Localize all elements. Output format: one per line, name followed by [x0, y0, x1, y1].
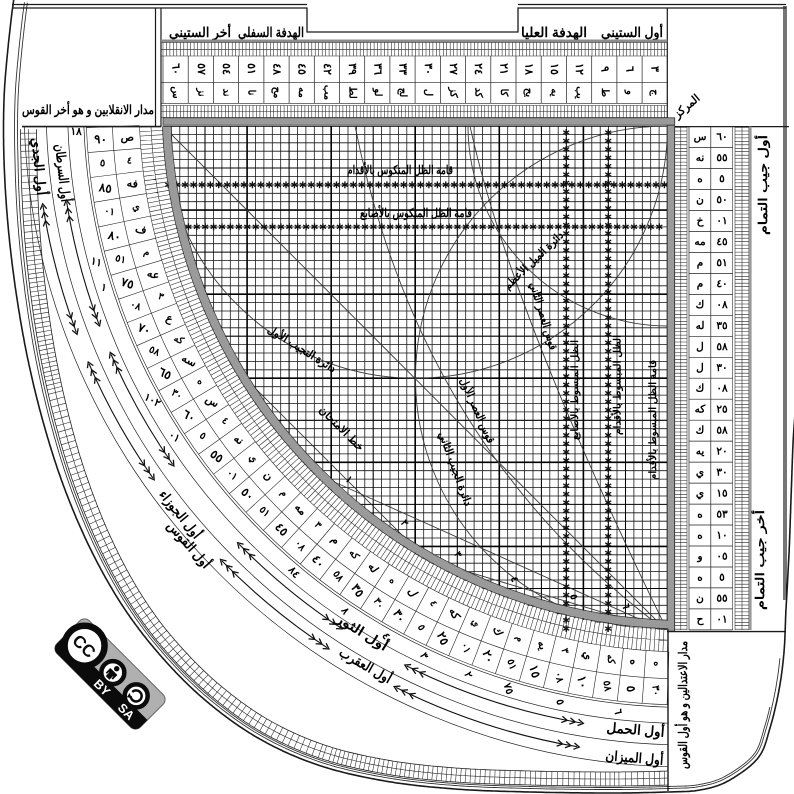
svg-text:الهدفة السفلي: الهدفة السفلي — [238, 25, 304, 41]
svg-text:كز: كز — [448, 86, 459, 98]
svg-text:نه: نه — [696, 152, 705, 164]
svg-text:١٨: ١٨ — [523, 63, 535, 75]
svg-text:٥٤: ٥٤ — [220, 63, 232, 75]
svg-text:٣٩: ٣٩ — [346, 63, 358, 75]
svg-text:مه: مه — [694, 236, 706, 248]
svg-text:كد: كد — [473, 87, 484, 97]
svg-text:مدار الانقلابين و هو أخر القوس: مدار الانقلابين و هو أخر القوس — [22, 101, 154, 118]
svg-text:أول جيب التمام: أول جيب التمام — [755, 135, 771, 235]
svg-text:فه: فه — [126, 177, 139, 190]
svg-text:مب: مب — [321, 85, 332, 100]
svg-text:ي: ي — [696, 467, 705, 480]
svg-text:قامة الظل المبسوط بالأقدام: قامة الظل المبسوط بالأقدام — [647, 360, 659, 480]
svg-text:٥٨: ٥٨ — [716, 425, 728, 437]
svg-text:٠٥: ٠٥ — [716, 551, 728, 563]
svg-text:ند: ند — [221, 88, 232, 96]
svg-text:٢٠: ٢٠ — [716, 446, 727, 458]
svg-text:ل: ل — [696, 362, 704, 374]
svg-text:نز: نز — [195, 87, 206, 97]
svg-text:١٠: ١٠ — [716, 530, 727, 542]
svg-text:٠٨: ٠٨ — [716, 299, 728, 311]
svg-text:و: و — [696, 551, 702, 563]
svg-text:٣٣: ٣٣ — [397, 63, 409, 75]
svg-text:٢٤: ٢٤ — [472, 63, 484, 75]
svg-text:٥٨: ٥٨ — [716, 341, 728, 353]
svg-text:٥: ٥ — [719, 572, 725, 584]
svg-text:ل: ل — [696, 341, 704, 353]
svg-text:ه: ه — [697, 530, 703, 542]
svg-text:٥: ٥ — [624, 685, 639, 693]
svg-text:٩٠: ٩٠ — [94, 132, 108, 147]
svg-text:مح: مح — [271, 87, 282, 99]
svg-text:٤٥: ٤٥ — [296, 63, 308, 75]
svg-text:٥٣: ٥٣ — [716, 509, 728, 521]
svg-text:٢٧: ٢٧ — [447, 63, 459, 75]
svg-text:٠٨: ٠٨ — [716, 383, 728, 395]
svg-text:٣٠: ٣٠ — [650, 685, 662, 696]
svg-text:أخر الستيني: أخر الستيني — [169, 22, 231, 41]
svg-text:يه: يه — [548, 88, 559, 96]
svg-text:ج: ج — [649, 89, 660, 96]
svg-text:ه: ه — [697, 173, 703, 185]
svg-text:لط: لط — [347, 86, 358, 99]
svg-text:الظل المبسوط بالأصابع: الظل المبسوط بالأصابع — [569, 340, 581, 440]
svg-text:ك: ك — [696, 425, 705, 437]
svg-text:٥١: ٥١ — [245, 63, 257, 75]
svg-text:٤٠: ٤٠ — [716, 278, 727, 290]
svg-text:يح: يح — [523, 88, 534, 97]
svg-text:٠١: ٠١ — [716, 215, 727, 227]
svg-text:٥٠: ٥٠ — [716, 194, 727, 206]
svg-text:٨٥: ٨٥ — [97, 180, 113, 196]
svg-text:٣٠: ٣٠ — [716, 467, 727, 479]
svg-text:الظل المبسوط بالأقدام: الظل المبسوط بالأقدام — [612, 335, 624, 435]
svg-text:ه: ه — [697, 509, 703, 521]
svg-text:س: س — [694, 131, 707, 143]
svg-text:م: م — [697, 278, 704, 290]
svg-text:٣٥: ٣٥ — [716, 320, 728, 332]
svg-text:ن: ن — [696, 592, 704, 604]
svg-text:ن: ن — [696, 194, 704, 206]
svg-text:نا: نا — [246, 90, 257, 96]
svg-text:لو: لو — [372, 87, 383, 96]
svg-text:ط: ط — [599, 88, 610, 97]
svg-text:قامة الظل المنكوس بالأقدام: قامة الظل المنكوس بالأقدام — [347, 162, 453, 178]
svg-text:٠١: ٠١ — [716, 613, 727, 625]
svg-text:٦٠: ٦٠ — [170, 63, 182, 75]
svg-text:٣٦: ٣٦ — [371, 63, 383, 75]
svg-text:٥٨: ٥٨ — [601, 680, 613, 693]
svg-text:٥٧: ٥٧ — [195, 63, 207, 75]
svg-text:ك: ك — [696, 383, 705, 395]
svg-text:مدار الاعتدالين و هو أول القوس: مدار الاعتدالين و هو أول القوس — [675, 641, 691, 769]
svg-text:٢١: ٢١ — [497, 63, 509, 75]
svg-text:٥١: ٥١ — [716, 257, 727, 269]
svg-text:الهدفة العليا: الهدفة العليا — [521, 25, 587, 41]
svg-text:١٥: ١٥ — [716, 488, 728, 500]
svg-text:ي: ي — [696, 488, 705, 501]
svg-text:٣٠: ٣٠ — [422, 63, 434, 75]
svg-text:ص: ص — [120, 131, 134, 144]
svg-text:م: م — [697, 257, 704, 269]
svg-text:لج: لج — [397, 88, 408, 98]
svg-text:ك: ك — [696, 299, 705, 311]
svg-text:قامة الظل المنكوس بالأصابع: قامة الظل المنكوس بالأصابع — [360, 205, 472, 221]
svg-text:٤: ٤ — [126, 155, 132, 166]
svg-text:ه: ه — [697, 572, 703, 584]
svg-text:٣: ٣ — [649, 66, 661, 72]
svg-text:ه: ه — [651, 661, 662, 667]
svg-text:٦٠: ٦٠ — [716, 131, 727, 143]
svg-text:س: س — [170, 86, 181, 98]
svg-text:و: و — [624, 89, 635, 95]
svg-text:١٠: ١٠ — [574, 675, 590, 690]
svg-text:٥٥: ٥٥ — [716, 592, 728, 604]
svg-text:٤٢: ٤٢ — [321, 63, 333, 75]
svg-text:١٨: ١٨ — [70, 125, 82, 138]
svg-text:مه: مه — [296, 87, 307, 98]
svg-text:٤٥: ٤٥ — [716, 236, 728, 248]
svg-text:٣٠: ٣٠ — [716, 362, 727, 374]
svg-text:٦: ٦ — [624, 66, 636, 72]
svg-text:١٢: ١٢ — [573, 63, 585, 75]
svg-text:٤٨: ٤٨ — [271, 63, 283, 75]
svg-text:٠١: ٠١ — [103, 206, 116, 219]
svg-text:٥٥: ٥٥ — [716, 152, 728, 164]
svg-text:١٥: ١٥ — [548, 63, 560, 75]
svg-text:يه: يه — [696, 446, 705, 458]
svg-text:٥: ٥ — [719, 173, 725, 185]
svg-text:أول الستيني: أول الستيني — [601, 22, 663, 41]
svg-text:له: له — [696, 320, 705, 332]
svg-text:أخر جيب التمام: أخر جيب التمام — [752, 510, 768, 610]
svg-text:ل: ل — [422, 89, 433, 96]
svg-text:كه: كه — [695, 404, 707, 416]
svg-text:٢٥: ٢٥ — [716, 404, 728, 416]
svg-text:يب: يب — [574, 86, 585, 99]
svg-text:٩: ٩ — [598, 66, 610, 72]
svg-text:كا: كا — [498, 89, 509, 97]
svg-text:٥: ٥ — [99, 158, 105, 169]
